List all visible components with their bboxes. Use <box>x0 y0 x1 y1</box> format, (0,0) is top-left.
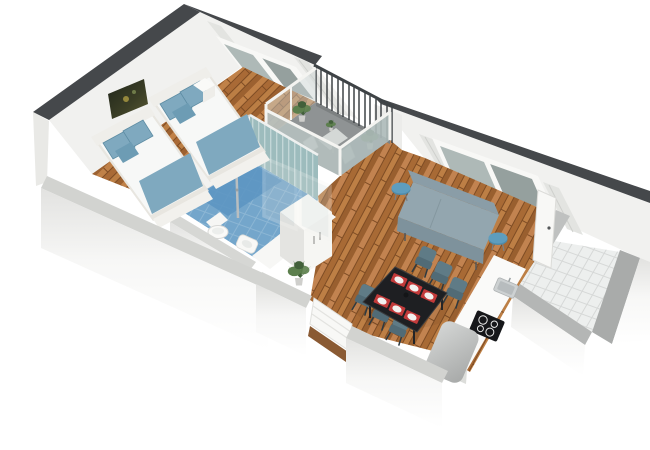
floorplan-render: 3D isometric floor plan rendering of a o… <box>0 0 650 450</box>
door-handle <box>547 226 550 229</box>
wall-art-detail <box>132 90 136 94</box>
wall-art-detail <box>123 96 129 102</box>
wall-end <box>33 112 49 186</box>
apartment-3d-svg <box>0 0 650 450</box>
table-centerpiece <box>404 293 409 298</box>
